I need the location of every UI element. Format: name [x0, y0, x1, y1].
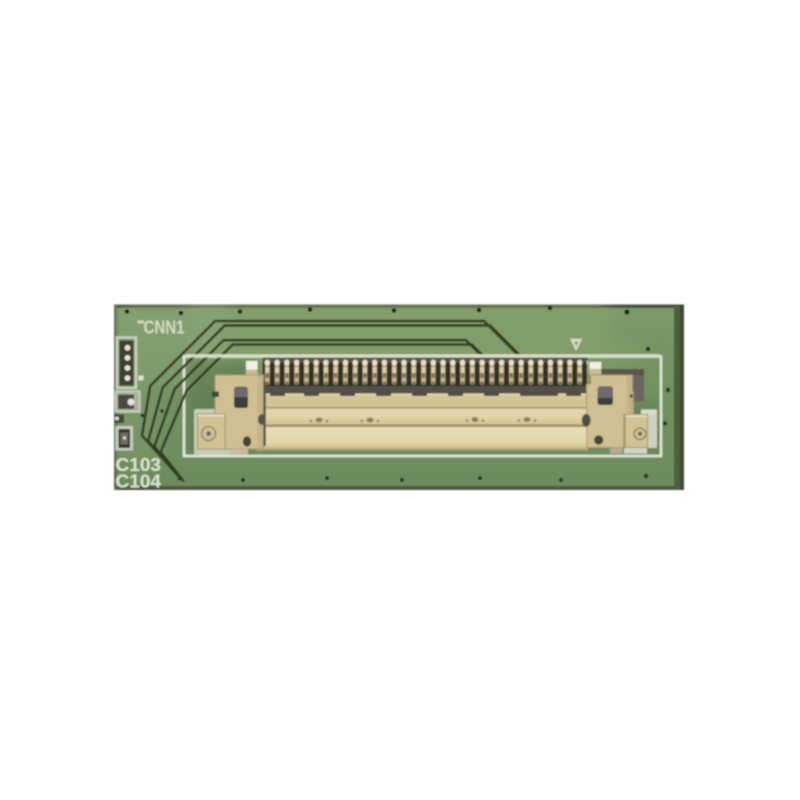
svg-text:C104: C104: [116, 471, 162, 492]
svg-text:CNN1: CNN1: [144, 318, 185, 338]
